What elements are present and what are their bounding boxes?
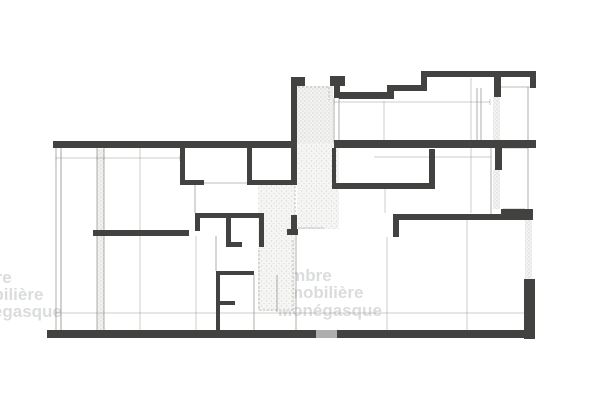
- svg-text:Monégasque: Monégasque: [0, 302, 62, 321]
